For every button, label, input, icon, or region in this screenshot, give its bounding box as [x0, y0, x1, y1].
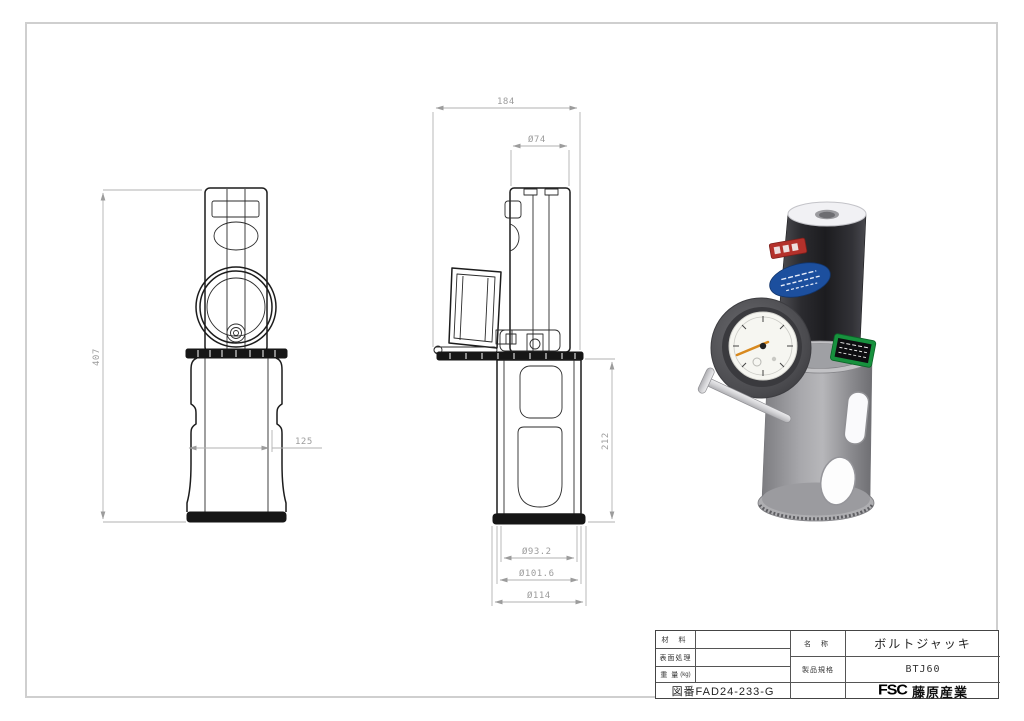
front-view: 407	[92, 188, 322, 522]
title-block: 材 料 表面処理 重 量(kg) 図番FAD24-233-G 名 称 ボルトジャ…	[655, 630, 999, 699]
drawing-number: 図番FAD24-233-G	[656, 683, 791, 699]
dim-base-inner-diameter: Ø93.2	[522, 546, 552, 557]
dim-base-outer-diameter: Ø101.6	[519, 568, 555, 579]
weight-label-text: 重 量	[660, 670, 679, 680]
material-label: 材 料	[656, 631, 696, 649]
side-view: 184 Ø74	[433, 97, 615, 606]
drawing-sheet: 407	[0, 0, 1024, 721]
flange-hatching	[198, 350, 275, 357]
dim-front-base-width: 125	[295, 437, 313, 447]
product-name: ボルトジャッキ	[846, 631, 1000, 657]
spec-label: 製品規格	[791, 657, 846, 683]
brand-name: 藤原産業	[912, 683, 968, 699]
fsc-logo: FSC	[878, 683, 907, 699]
technical-drawing-canvas: 407	[0, 0, 1024, 721]
product-spec: BTJ60	[846, 657, 1000, 683]
dim-cylinder-diameter: Ø74	[528, 134, 546, 145]
material-value	[696, 631, 791, 649]
dim-base-height: 212	[601, 432, 611, 450]
pressure-gauge	[711, 298, 811, 398]
dim-flange-diameter: Ø114	[527, 590, 551, 601]
surface-treatment-value	[696, 649, 791, 667]
dim-front-height: 407	[92, 348, 102, 366]
dim-side-overall-width: 184	[497, 97, 515, 107]
weight-value	[696, 667, 791, 683]
brand-cell: FSC 藤原産業	[846, 683, 1000, 699]
brand-label-cell	[791, 683, 846, 699]
render-3d-view	[697, 202, 876, 521]
name-label: 名 称	[791, 631, 846, 657]
weight-label: 重 量(kg)	[656, 667, 696, 683]
surface-treatment-label: 表面処理	[656, 649, 696, 667]
weight-unit: (kg)	[680, 672, 690, 678]
